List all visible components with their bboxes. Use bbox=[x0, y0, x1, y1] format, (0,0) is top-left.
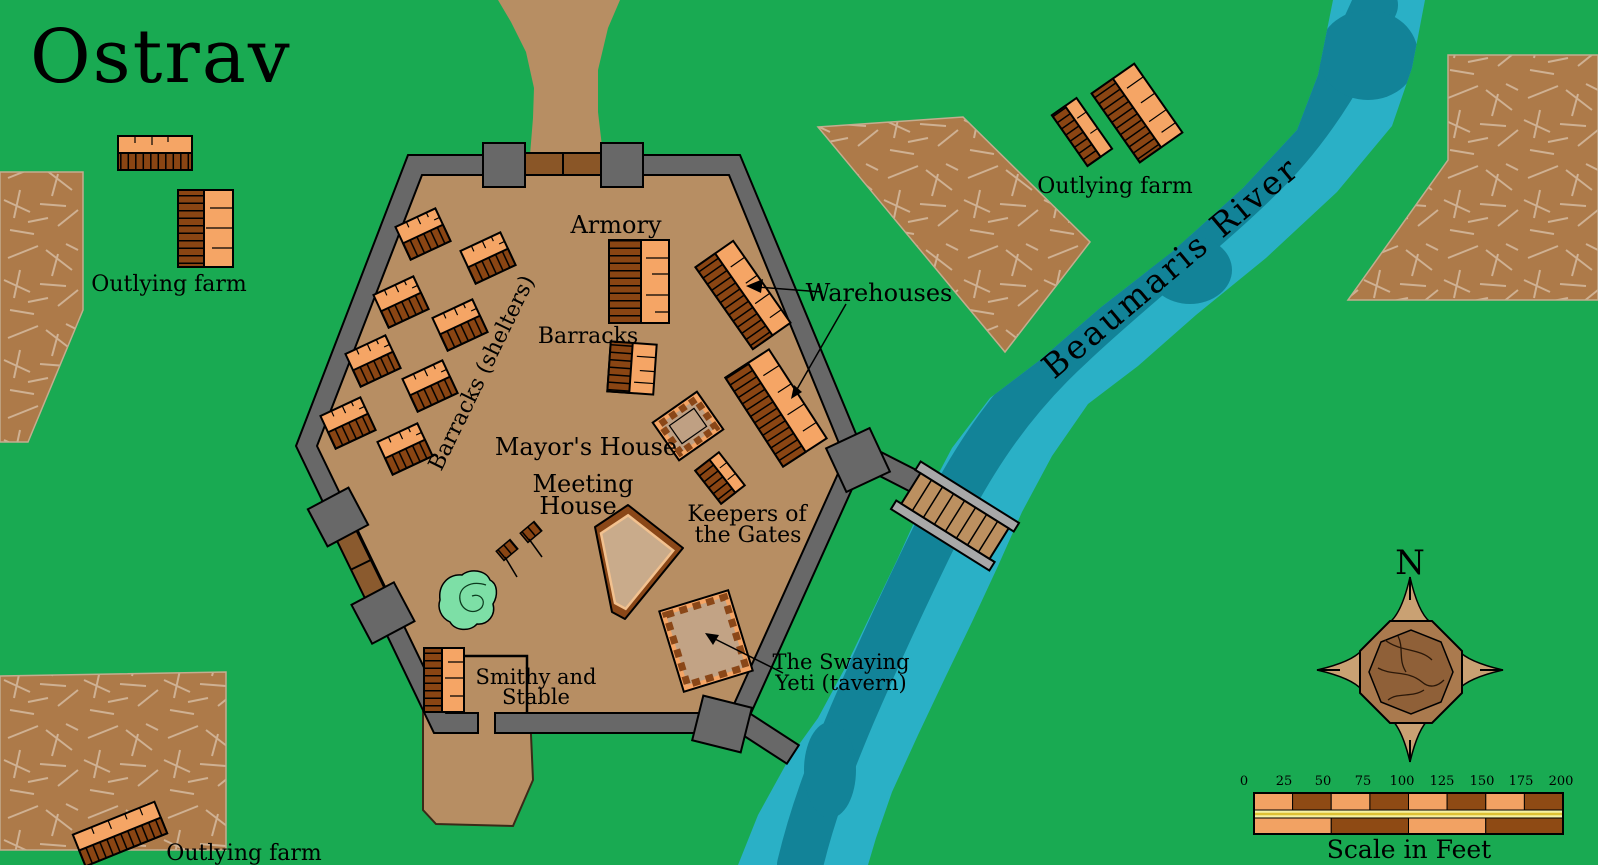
scale-tick-labels: 0 25 50 75 100 125 150 175 200 bbox=[1240, 774, 1574, 789]
armory-building bbox=[609, 240, 669, 323]
north-gate-tower-west bbox=[483, 143, 525, 187]
scale-bar-bottom-row bbox=[1254, 818, 1563, 834]
scale-tick: 25 bbox=[1276, 774, 1293, 789]
scale-tick: 175 bbox=[1509, 774, 1534, 789]
scale-tick: 0 bbox=[1240, 774, 1248, 789]
label-farm-southwest: Outlying farm bbox=[166, 841, 322, 865]
scale-tick: 125 bbox=[1430, 774, 1455, 789]
town-map: 0 25 50 75 100 125 150 175 200 Scale in … bbox=[0, 0, 1598, 865]
scale-bar-top-row bbox=[1254, 793, 1563, 810]
scale-tick: 200 bbox=[1549, 774, 1574, 789]
label-warehouses: Warehouses bbox=[806, 279, 953, 307]
north-gate-tower-east bbox=[601, 143, 643, 187]
scale-tick: 100 bbox=[1390, 774, 1415, 789]
scale-tick: 150 bbox=[1470, 774, 1495, 789]
farmhouse-northwest-2 bbox=[178, 190, 233, 267]
compass-north-letter: N bbox=[1395, 543, 1425, 583]
compass-inner-octagon bbox=[1369, 630, 1453, 714]
label-armory: Armory bbox=[569, 211, 661, 239]
label-meeting-house-line2: House bbox=[539, 492, 616, 520]
tree bbox=[439, 571, 496, 630]
south-gate-opening bbox=[478, 711, 495, 735]
scale-caption: Scale in Feet bbox=[1327, 835, 1491, 864]
north-gate-doors bbox=[525, 153, 602, 175]
scale-tick: 50 bbox=[1315, 774, 1332, 789]
scale-tick: 75 bbox=[1355, 774, 1372, 789]
map-title: Ostrav bbox=[30, 14, 292, 100]
label-smithy-line2: Stable bbox=[502, 685, 570, 709]
label-barracks: Barracks bbox=[538, 324, 638, 349]
label-farm-northwest: Outlying farm bbox=[91, 272, 247, 297]
barracks-building bbox=[607, 341, 656, 394]
label-mayors-house: Mayor's House bbox=[495, 433, 677, 461]
farmhouse-northwest-1 bbox=[118, 136, 192, 170]
label-farm-northeast: Outlying farm bbox=[1037, 174, 1193, 199]
label-keepers-line2: the Gates bbox=[695, 523, 802, 548]
label-tavern-line2: Yeti (tavern) bbox=[774, 671, 907, 695]
map-canvas: 0 25 50 75 100 125 150 175 200 Scale in … bbox=[0, 0, 1598, 865]
